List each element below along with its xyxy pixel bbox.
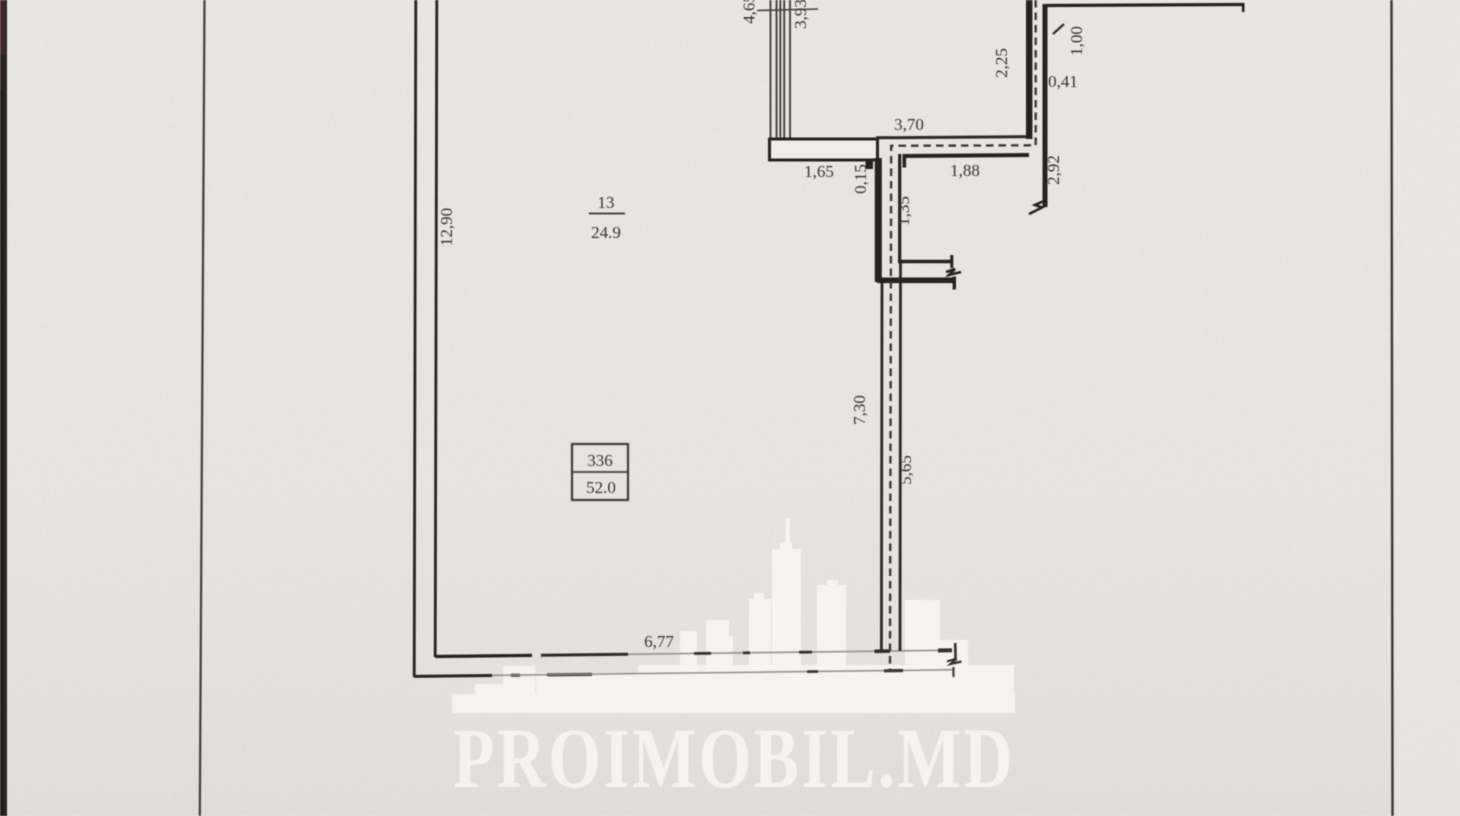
svg-text:1,00: 1,00 xyxy=(1067,26,1086,56)
svg-text:2,92: 2,92 xyxy=(1044,155,1063,185)
svg-text:7,30: 7,30 xyxy=(850,395,869,425)
svg-text:1,35: 1,35 xyxy=(894,196,913,226)
svg-text:13: 13 xyxy=(598,193,615,212)
svg-text:2,25: 2,25 xyxy=(992,48,1011,78)
svg-text:6,77: 6,77 xyxy=(644,632,674,651)
svg-text:52.0: 52.0 xyxy=(586,478,616,497)
svg-text:3,70: 3,70 xyxy=(894,115,924,134)
svg-text:PROIMOBIL.MD: PROIMOBIL.MD xyxy=(453,710,1015,806)
svg-text:0,41: 0,41 xyxy=(1048,72,1078,91)
svg-text:24.9: 24.9 xyxy=(591,223,621,242)
svg-text:336: 336 xyxy=(587,451,613,470)
svg-text:12,90: 12,90 xyxy=(437,208,456,246)
svg-text:3,93: 3,93 xyxy=(791,0,810,29)
svg-text:4,65: 4,65 xyxy=(740,0,759,24)
svg-text:1,65: 1,65 xyxy=(804,162,834,181)
svg-text:5,65: 5,65 xyxy=(896,455,915,485)
svg-text:1,88: 1,88 xyxy=(950,161,980,180)
svg-text:0,15: 0,15 xyxy=(851,164,870,194)
